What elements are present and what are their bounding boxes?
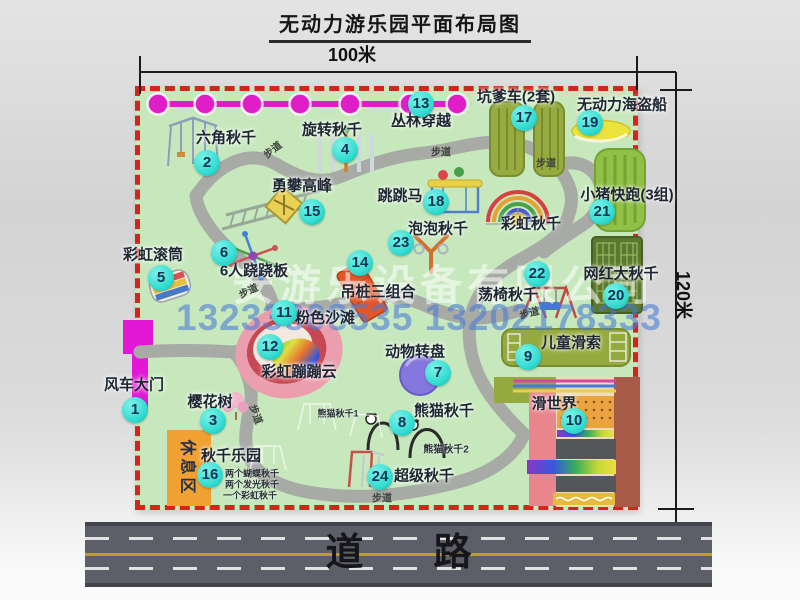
windmill-gate-icon — [132, 352, 148, 410]
rest-area: 休息区 — [167, 430, 211, 506]
windmill-gate-icon — [123, 320, 153, 354]
layout-plan-page: 无动力游乐园平面布局图 休息区 — [0, 0, 800, 600]
road: 道路 — [85, 522, 712, 587]
road-label: 道路 — [85, 526, 712, 581]
rest-area-label: 休息区 — [177, 439, 201, 496]
width-dimension-label: 100米 — [328, 41, 376, 67]
page-title: 无动力游乐园平面布局图 — [269, 7, 531, 43]
height-dimension-label: 120米 — [671, 271, 697, 319]
watermark-phone: 13233808535 13202178333 — [176, 297, 662, 339]
